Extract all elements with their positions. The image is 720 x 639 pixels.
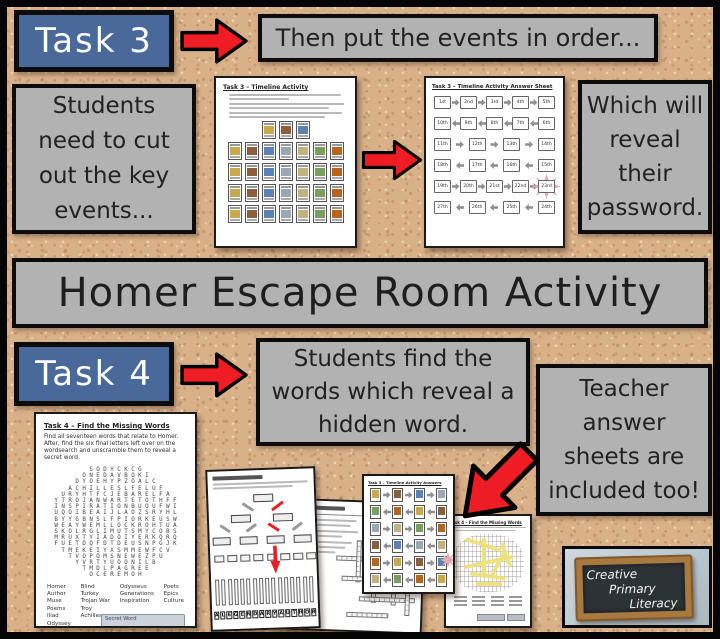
event-card [262,121,276,139]
text-line-placeholder [213,484,293,489]
timeline-cell: 13th [503,138,520,151]
arrow-right-icon [490,141,498,148]
timeline-cell: 16th [503,159,520,172]
timeline-cell: 15th [538,159,555,172]
picture-thumb [372,558,379,566]
timeline-cell-wrap: 5th [538,96,555,109]
event-card-row [223,121,348,139]
card-text-placeholder [281,135,291,137]
picture-thumb [416,541,423,549]
picture-card [370,573,381,587]
timeline-cell-wrap: 4th [512,96,529,109]
card-label-placeholder [247,186,257,188]
timeline-cell: 10th [434,117,451,130]
arrow-left-icon [456,204,464,211]
event-cards-grid [223,121,348,223]
flow-node [253,494,273,503]
answer-letter-tile: A [214,612,220,620]
picture-thumb [438,575,445,583]
secret-word-answer-boxes [477,614,525,621]
timeline-cell-wrap: 24th [538,201,555,214]
flowchart-title-placeholder [212,475,262,480]
picture-card [436,573,447,587]
event-card [330,184,344,202]
flow-edge [242,502,254,511]
picture-thumb [416,507,423,515]
card-text-placeholder [298,156,308,158]
chalkboard: Creative Primary Literacy [574,554,694,621]
timeline-cell: 23rd [538,180,555,193]
letter-strip [259,578,264,604]
timeline-answers-title: Task 3 – Timeline Activity Answers [368,480,449,485]
picture-thumb [416,524,423,532]
picture-timeline-row [368,522,449,536]
main-title-text: Homer Escape Room Activity [58,270,663,316]
word-column: HomerAuthorMusePoemsIliadOdyssey [47,584,71,628]
event-card [313,205,327,223]
card-text-placeholder [247,219,257,221]
word-item: Poets [164,584,184,591]
picture-card [414,505,425,519]
arrow-left-icon [525,162,533,169]
timeline-cell: 26th [469,201,486,214]
arrow-left-icon [427,509,435,516]
card-picture [264,147,274,155]
answer-letter-tile: R [311,608,317,616]
event-card [330,163,344,181]
card-picture [332,189,342,197]
arrow-left-icon [478,120,486,127]
event-card [279,121,293,139]
worksheet3-title: Task 4 – Find the Missing Words [44,422,187,430]
event-card [279,184,293,202]
flow-leaf [214,555,224,562]
arrow-left-icon [427,577,435,584]
worksheet3-instructions: Find all seventeen words that relate to … [44,434,187,462]
answer-letter-tile: R [265,610,271,618]
secret-word-answer-box [477,614,505,621]
card-picture [247,168,257,176]
card-picture [281,147,291,155]
word-column [509,596,522,608]
event-card [262,205,276,223]
flow-node [273,513,293,522]
event-card [279,163,293,181]
flow-leaf [293,553,303,560]
picture-thumb [394,575,401,583]
text-line-placeholder [229,103,344,105]
word-column [454,596,467,608]
text-line-placeholder [229,98,289,100]
card-picture [298,126,308,134]
timeline-cell-wrap: 8th [486,117,503,130]
word-item: Author [47,591,71,598]
task3-label: Task 3 [35,21,153,61]
arrow-right-icon [530,99,538,106]
card-picture [281,168,291,176]
task4-label-box: Task 4 [14,342,174,406]
event-card [228,184,242,202]
word-item: Iliad [47,613,71,620]
flow-edge [292,521,303,530]
card-text-placeholder [315,177,325,179]
arrow-left-icon [525,204,533,211]
brand-logo-text: Creative Primary Literacy [582,563,685,614]
card-label-placeholder [332,144,342,146]
card-picture [264,189,274,197]
card-label-placeholder [264,144,274,146]
flow-node [294,534,312,543]
picture-card [392,488,403,502]
card-text-placeholder [264,156,274,158]
card-label-placeholder [230,186,240,188]
picture-thumb [372,507,379,515]
card-label-placeholder [298,165,308,167]
card-text-placeholder [315,198,325,200]
letter-strip [240,579,245,605]
timeline-cell: 21st [486,180,503,193]
picture-card [414,539,425,553]
flow-leaf [240,554,250,561]
picture-timeline-row [368,539,449,553]
answer-letter-tile: A [278,609,284,617]
picture-thumb [372,524,379,532]
picture-card [370,539,381,553]
picture-card [436,522,447,536]
timeline-row: 1st2nd3rd4th5th [432,96,557,109]
picture-card [370,505,381,519]
card-picture [315,210,325,218]
card-label-placeholder [230,165,240,167]
card-label-placeholder [281,207,291,209]
card-picture [247,147,257,155]
event-card [296,142,310,160]
arrow-right-icon [427,560,435,567]
card-picture [298,147,308,155]
card-label-placeholder [332,207,342,209]
word-item: Turkey [81,591,110,598]
answer-letter-tile: E [227,611,233,619]
picture-card [414,573,425,587]
card-label-placeholder [264,207,274,209]
timeline-row: 19th20th21st22nd23rd [432,180,557,193]
event-card [296,205,310,223]
word-item: Homer [47,584,71,591]
event-card [245,163,259,181]
arrow-left-icon [383,577,391,584]
event-card [228,163,242,181]
timeline-cell: 25th [503,201,520,214]
find-words-text: Students find the words which reveal a h… [270,343,516,442]
event-card [245,184,259,202]
worksheet1-bullet-lines [223,94,348,118]
picture-thumb [438,541,445,549]
secret-word-answer-box [507,614,525,621]
picture-card [370,522,381,536]
flow-node [267,535,285,544]
card-picture [264,126,274,134]
flow-edge-red [271,501,284,512]
event-card [228,142,242,160]
picture-card [392,556,403,570]
card-picture [332,168,342,176]
picture-thumb [394,541,401,549]
event-card-row [223,142,348,160]
text-line-placeholder [229,112,342,114]
letter-strip [234,579,239,605]
arrow-right-icon [383,526,391,533]
card-text-placeholder [247,177,257,179]
word-item: Culture [164,598,184,605]
card-text-placeholder [264,135,274,137]
timeline-cell: 7th [512,117,529,130]
timeline-cell-wrap: 1st [434,96,451,109]
students-cut-text: Students need to cut out the key events.… [24,89,184,229]
card-label-placeholder [264,165,274,167]
card-picture [298,189,308,197]
picture-timeline-rows [368,488,449,587]
card-label-placeholder [298,123,308,125]
card-text-placeholder [230,156,240,158]
card-picture [298,210,308,218]
timeline-cell-wrap: 7th [512,117,529,130]
card-text-placeholder [247,198,257,200]
wordsearch-row: B Y Y G B N S L F P I O R K E U S W [44,517,187,523]
word-column [491,596,504,608]
timeline-cell-wrap: 14th [538,138,555,151]
picture-thumb [394,524,401,532]
picture-card [370,556,381,570]
picture-card [392,522,403,536]
timeline-cell-wrap: 22nd [512,180,529,193]
event-card [313,142,327,160]
arrow-right-icon [427,526,435,533]
event-card [330,205,344,223]
arrow-right-icon [383,492,391,499]
arrow-left-icon [490,204,498,211]
card-text-placeholder [230,219,240,221]
picture-card [436,539,447,553]
picture-thumb [394,507,401,515]
card-text-placeholder [298,177,308,179]
picture-thumb [416,575,423,583]
arrow-right-icon [478,99,486,106]
timeline-cell: 17th [469,159,486,172]
word-item: Muse [47,598,71,605]
arrow-right-icon [179,350,249,400]
event-card [245,205,259,223]
card-picture [264,210,274,218]
worksheet-missing-words: Task 4 – Find the Missing Words Find all… [34,412,197,628]
event-card [279,142,293,160]
card-picture [315,168,325,176]
picture-thumb [372,490,379,498]
card-text-placeholder [264,177,274,179]
flow-leaf [227,555,237,562]
card-label-placeholder [298,207,308,209]
card-picture [264,168,274,176]
worksheet-timeline-activity: Task 3 – Timeline Activity [214,76,357,248]
arrow-left-icon [530,120,538,127]
timeline-cell: 6th [538,117,555,130]
answer-letter-tile: L [220,611,225,619]
timeline-cell-wrap: 11th [434,138,451,151]
timeline-row: 27th26th25th24th [432,201,557,214]
card-text-placeholder [332,219,342,221]
timeline-cell-wrap: 27th [434,201,451,214]
word-item: Inspiration [120,598,154,605]
card-text-placeholder [298,135,308,137]
card-label-placeholder [315,207,325,209]
timeline-cell: 5th [538,96,555,109]
card-label-placeholder [298,186,308,188]
timeline-cell-wrap: 21st [486,180,503,193]
timeline-cell: 11th [434,138,451,151]
arrow-right-icon [405,560,413,567]
card-text-placeholder [315,156,325,158]
event-card [262,142,276,160]
timeline-row: 11th12th13th14th [432,138,557,151]
card-label-placeholder [315,165,325,167]
timeline-cell: 12th [469,138,486,151]
timeline-cell-wrap: 13th [503,138,520,151]
card-picture [332,147,342,155]
arrow-right-icon [525,141,533,148]
password-note: Which will reveal their password. [578,80,712,234]
card-picture [315,147,325,155]
arrow-left-icon [504,120,512,127]
event-card [330,142,344,160]
card-label-placeholder [281,123,291,125]
timeline-cell-wrap: 17th [469,159,486,172]
timeline-cell-wrap: 9th [460,117,477,130]
card-picture [247,189,257,197]
worksheet2-title: Task 3 – Timeline Activity Answer Sheet [432,84,557,90]
arrow-right-icon [405,492,413,499]
card-label-placeholder [264,186,274,188]
picture-card [392,505,403,519]
picture-card [414,488,425,502]
flow-node [240,536,258,545]
brand-logo-photo: Creative Primary Literacy [562,546,712,628]
picture-timeline-row [368,556,449,570]
text-line-placeholder [229,116,325,118]
picture-thumb [372,541,379,549]
word-item: Odysseus [120,584,154,591]
arrow-right-icon [405,526,413,533]
card-picture [247,210,257,218]
word-item: Trojan War [81,598,110,605]
highlight-mark [460,536,501,553]
flowchart-answer-page: ALEGENDARYAUTHOR [205,466,321,632]
answer-letter-tile: U [285,609,291,617]
letter-strip [290,577,295,603]
timeline-cell-wrap: 19th [434,180,451,193]
picture-card [414,522,425,536]
picture-card [392,573,403,587]
card-picture [332,210,342,218]
word-item: Epics [164,591,184,598]
card-text-placeholder [315,219,325,221]
arrow-left-icon [490,162,498,169]
text-line-placeholder [213,480,308,485]
timeline-row: 10th9th8th7th6th [432,117,557,130]
arrow-left-icon [383,509,391,516]
arrow-left-icon [405,543,413,550]
card-label-placeholder [230,207,240,209]
timeline-cell: 19th [434,180,451,193]
picture-card [414,556,425,570]
brand-line-literacy: Literacy [629,596,681,612]
card-text-placeholder [230,198,240,200]
secret-word-label: Secret Word [105,616,137,622]
arrow-right-icon [456,141,464,148]
event-card [262,163,276,181]
picture-thumb [438,507,445,515]
card-text-placeholder [298,198,308,200]
flow-leaf [254,554,264,561]
word-item: Odyssey [47,621,71,628]
wordsearch-grid: S O D Y C K C GO N E D A V B O K ID Y O … [44,467,187,579]
timeline-cell: 1st [434,96,451,109]
letter-strips [215,576,314,605]
card-label-placeholder [281,165,291,167]
card-picture [298,168,308,176]
then-put-events-text: Then put the events in order... [276,24,641,52]
arrow-right-icon [179,16,249,66]
card-text-placeholder [332,156,342,158]
picture-card [370,488,381,502]
card-picture [230,147,240,155]
picture-card [392,539,403,553]
task3-label-box: Task 3 [14,10,174,72]
cork-board-poster: Task 3 Then put the events in order... S… [0,0,720,639]
card-label-placeholder [315,186,325,188]
card-text-placeholder [281,219,291,221]
timeline-cell: 8th [486,117,503,130]
word-item: Blind [81,584,110,591]
card-text-placeholder [264,219,274,221]
wordsearch-row: O C E R E M O H [44,572,187,578]
word-item: Troy [81,606,110,613]
timeline-cell: 2nd [460,96,477,109]
card-text-placeholder [281,156,291,158]
flow-edge [246,523,257,532]
card-label-placeholder [247,144,257,146]
answer-letter-tiles: ALEGENDARYAUTHOR [215,608,315,619]
card-text-placeholder [281,177,291,179]
arrow-right-icon [478,183,486,190]
flow-edge-red [267,522,280,532]
wordsearch-row: U Q O I B E A I J L A O Z S R Y H L [44,510,187,516]
secret-word-box: Secret Word [101,614,185,628]
card-picture [281,210,291,218]
answer-letter-tile: Y [272,610,278,618]
card-picture [230,189,240,197]
card-label-placeholder [247,207,257,209]
letter-strip [215,580,220,606]
letter-strip [271,578,276,604]
timeline-cell-wrap: 25th [503,201,520,214]
card-picture [315,189,325,197]
card-picture [281,189,291,197]
card-picture [230,210,240,218]
timeline-cell: 22nd [512,180,529,193]
letter-strip [284,577,289,603]
arrow-left-icon [427,543,435,550]
worksheet-timeline-answer-sheet: Task 3 – Timeline Activity Answer Sheet … [424,76,565,248]
timeline-cell-wrap: 6th [538,117,555,130]
